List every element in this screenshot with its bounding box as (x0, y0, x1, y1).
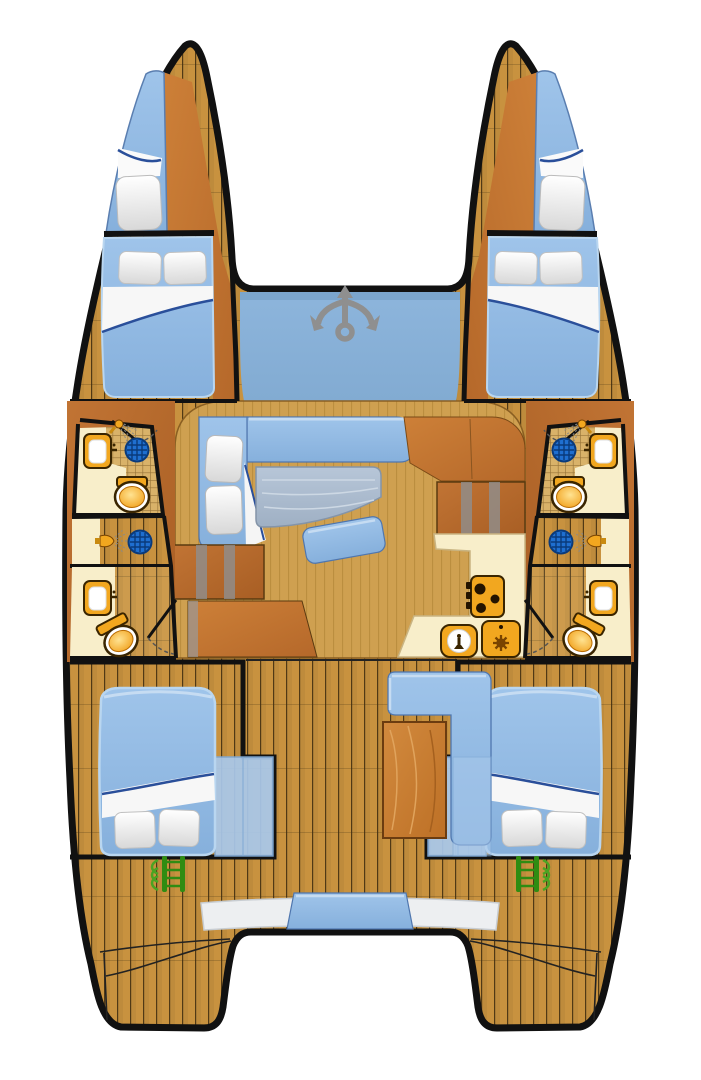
salon-sofa-top (247, 417, 412, 462)
bed-pillow (114, 811, 155, 848)
nav-slab (188, 601, 317, 657)
salon (172, 401, 525, 660)
toilet-icon (115, 477, 149, 512)
drain-icon (129, 531, 152, 554)
steps-port (172, 545, 264, 599)
catamaran-plan (0, 0, 701, 1080)
forepeak-bulkhead (104, 233, 214, 234)
cabin-bench-overlay (453, 757, 491, 856)
settee-pillow (205, 485, 243, 534)
galley-sink-icon (441, 625, 477, 657)
forward-head (72, 420, 163, 515)
bed-pillow (118, 251, 161, 284)
drain-icon (126, 439, 149, 462)
stove-icon (466, 576, 504, 617)
steps-starboard (437, 482, 525, 537)
bed-pillow (158, 809, 199, 846)
cockpit (383, 672, 491, 856)
shower-room (70, 516, 171, 566)
settee-pillow (205, 435, 243, 483)
appliance-icon (482, 621, 520, 657)
catamaran-plan-canvas (0, 0, 701, 1080)
transom-cushion (287, 893, 413, 929)
foredeck-trampoline (240, 285, 460, 401)
forepeak-pillow (116, 175, 163, 231)
bed-pillow (163, 251, 206, 284)
cabin-bench (215, 757, 273, 856)
